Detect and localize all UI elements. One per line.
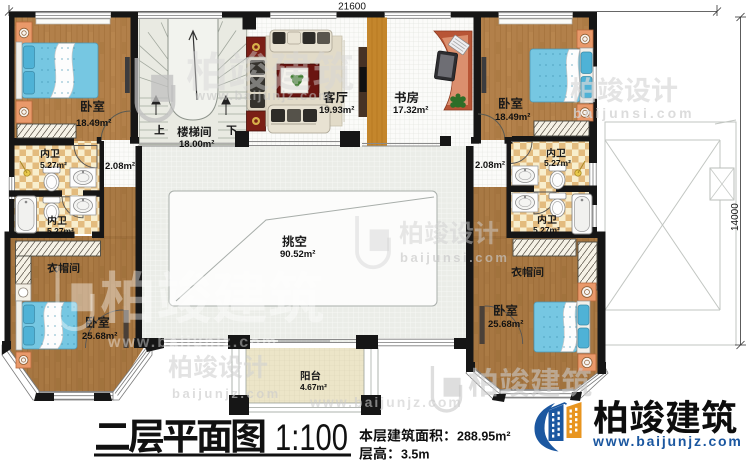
- svg-text:baijunsi.com: baijunsi.com: [573, 105, 695, 121]
- svg-text:18.49m²: 18.49m²: [495, 112, 530, 123]
- svg-text:www.baijunjz.com: www.baijunjz.com: [592, 433, 743, 449]
- svg-text:www.baijunjz.com: www.baijunjz.com: [194, 88, 331, 103]
- svg-text:90.52m²: 90.52m²: [280, 249, 315, 260]
- svg-text:14000: 14000: [730, 203, 741, 231]
- svg-text:18.49m²: 18.49m²: [76, 118, 111, 129]
- svg-text:www.baijunjz.com: www.baijunjz.com: [107, 334, 278, 351]
- svg-text:2.08m²: 2.08m²: [475, 160, 505, 171]
- svg-text:3.5m: 3.5m: [401, 448, 430, 462]
- svg-text:baijunsi.com: baijunsi.com: [400, 250, 509, 265]
- svg-text:5.27m²: 5.27m²: [40, 160, 67, 170]
- svg-text:5.27m²: 5.27m²: [544, 158, 571, 168]
- svg-text:25.68m²: 25.68m²: [488, 319, 523, 330]
- svg-text:4.67m²: 4.67m²: [300, 382, 327, 392]
- svg-text:1:100: 1:100: [275, 417, 348, 458]
- svg-text:baijunjz.com: baijunjz.com: [172, 386, 281, 401]
- svg-text:19.93m²: 19.93m²: [319, 105, 354, 116]
- svg-text:5.27m²: 5.27m²: [47, 226, 74, 236]
- svg-text:288.95m²: 288.95m²: [457, 430, 511, 444]
- svg-text:2.08m²: 2.08m²: [105, 161, 135, 172]
- svg-text:www.baijunjz.com: www.baijunjz.com: [309, 394, 463, 410]
- svg-text:18.00m²: 18.00m²: [179, 139, 214, 150]
- svg-text:21600: 21600: [338, 2, 366, 13]
- svg-text:5.27m²: 5.27m²: [533, 225, 560, 235]
- svg-text:17.32m²: 17.32m²: [393, 105, 428, 116]
